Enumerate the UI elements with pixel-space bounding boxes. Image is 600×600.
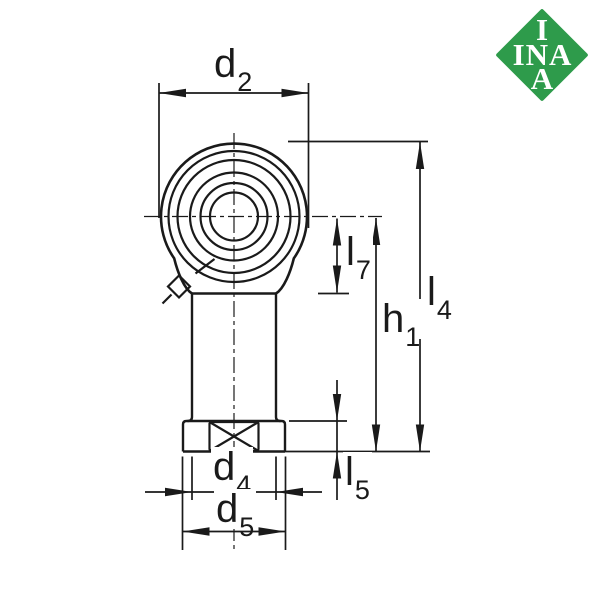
shank-left-edge (188, 294, 193, 422)
l7-arrow-bottom (333, 266, 341, 293)
l5-arrow-top (333, 394, 341, 421)
d4-arrow-left (165, 488, 192, 496)
dim-label-d2-sub: 2 (237, 67, 252, 97)
ina-logo-letters: I INA A (495, 18, 590, 90)
l4-arrow-top (416, 142, 424, 169)
ina-logo-letter-bottom: A (531, 67, 554, 90)
ina-logo: I INA A (495, 8, 590, 103)
dim-label-h1-sub: 1 (405, 322, 420, 352)
dim-label-d4: d4 (211, 447, 253, 487)
dim-label-l4-sub: 4 (437, 295, 452, 325)
dim-label-d5: d5 (214, 489, 256, 529)
h1-arrow-bottom (372, 425, 380, 452)
d5-arrow-left (183, 527, 210, 535)
d2-arrow-right (282, 89, 309, 97)
dim-label-l7-sub: 7 (356, 255, 371, 285)
dim-label-d2: d2 (212, 44, 254, 84)
dim-label-h1: h1 (380, 299, 422, 339)
dim-label-d5-main: d (216, 487, 238, 531)
d5-arrow-right (259, 527, 286, 535)
shank-right-edge (276, 294, 281, 422)
d2-arrow-left (159, 89, 186, 97)
dim-label-d4-main: d (213, 445, 235, 489)
dim-label-l5-main: l (345, 450, 354, 494)
dim-label-l4-main: l (427, 270, 436, 314)
dim-label-l5-sub: 5 (355, 475, 370, 505)
dim-label-d2-main: d (214, 42, 236, 86)
dim-label-l7: l7 (344, 232, 373, 272)
dim-label-l4: l4 (425, 272, 454, 312)
l5-arrow-bottom (333, 452, 341, 479)
l4-arrow-bottom (416, 425, 424, 452)
dim-label-h1-main: h (382, 297, 404, 341)
dim-label-l5: l5 (343, 452, 372, 492)
dim-label-d5-sub: 5 (239, 512, 254, 542)
technical-drawing-canvas: d2 l7 h1 l4 d4 l5 d5 I INA A (0, 0, 600, 600)
d4-arrow-right (276, 488, 303, 496)
dim-label-l7-main: l (346, 230, 355, 274)
grease-nipple (163, 259, 215, 304)
grease-nipple-tail-line (163, 295, 172, 304)
l7-arrow-top (333, 219, 341, 246)
h1-arrow-top (372, 218, 380, 245)
